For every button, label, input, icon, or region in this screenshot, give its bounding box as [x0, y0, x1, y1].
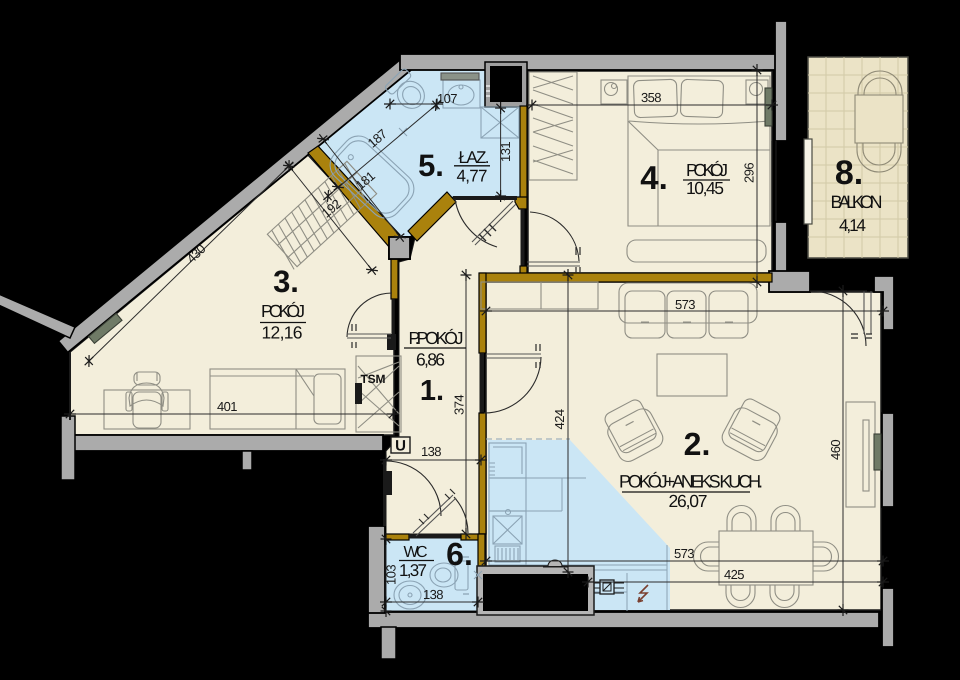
svg-text:8.: 8.	[835, 154, 863, 192]
svg-text:4,14: 4,14	[839, 216, 866, 235]
svg-text:ŁAZ.: ŁAZ.	[459, 148, 490, 167]
svg-text:138: 138	[421, 444, 441, 459]
svg-text:6.: 6.	[446, 536, 473, 572]
svg-text:POKÓJ+ANEKS KUCH.: POKÓJ+ANEKS KUCH.	[619, 472, 763, 492]
svg-text:26,07: 26,07	[669, 491, 708, 511]
svg-text:138: 138	[423, 587, 443, 602]
svg-text:573: 573	[674, 546, 694, 561]
svg-text:1.: 1.	[420, 375, 444, 407]
svg-text:5.: 5.	[418, 148, 444, 183]
svg-text:4,77: 4,77	[457, 167, 488, 186]
svg-text:424: 424	[552, 409, 567, 429]
svg-text:460: 460	[828, 440, 843, 460]
svg-text:2.: 2.	[684, 426, 711, 462]
svg-text:374: 374	[452, 395, 467, 415]
svg-text:U: U	[395, 438, 406, 455]
svg-text:3.: 3.	[273, 264, 299, 299]
svg-text:BALKON: BALKON	[831, 192, 883, 212]
svg-text:425: 425	[724, 567, 744, 582]
svg-text:131: 131	[498, 142, 513, 162]
svg-text:103: 103	[384, 565, 399, 585]
svg-text:401: 401	[217, 399, 237, 414]
svg-text:358: 358	[641, 90, 661, 105]
svg-text:6,86: 6,86	[416, 350, 445, 370]
svg-text:12,16: 12,16	[262, 323, 303, 343]
svg-text:POKÓJ: POKÓJ	[686, 160, 728, 180]
svg-text:107: 107	[437, 91, 457, 106]
svg-text:POKÓJ: POKÓJ	[261, 301, 305, 321]
svg-text:10,45: 10,45	[686, 178, 724, 198]
svg-text:WC: WC	[404, 544, 428, 561]
svg-text:P.POKÓJ: P.POKÓJ	[409, 328, 464, 348]
svg-text:296: 296	[742, 163, 757, 183]
svg-text:573: 573	[675, 297, 695, 312]
svg-text:TSM: TSM	[361, 372, 386, 386]
svg-text:4.: 4.	[640, 159, 668, 196]
svg-text:1,37: 1,37	[399, 561, 427, 580]
